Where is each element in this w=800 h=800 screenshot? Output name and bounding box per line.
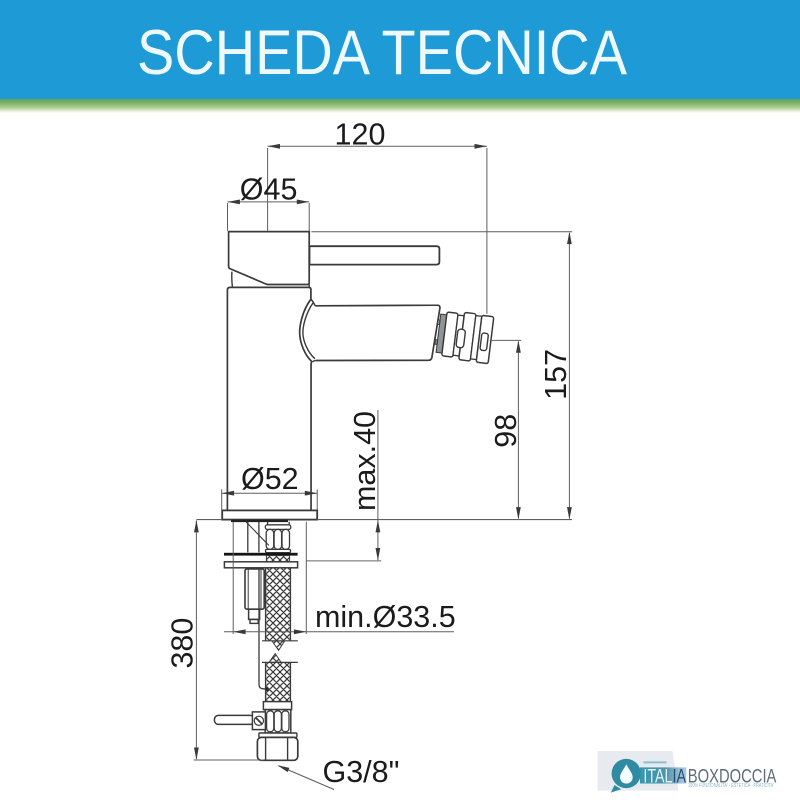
svg-text:ITALIA: ITALIA [643,766,686,787]
svg-text:SCHEDA TECNICA: SCHEDA TECNICA [137,18,628,88]
svg-text:G3/8": G3/8" [323,755,400,789]
svg-text:Ø45: Ø45 [240,173,298,207]
svg-text:120: 120 [335,118,386,152]
svg-text:Ø52: Ø52 [241,462,299,496]
svg-text:380: 380 [165,618,199,669]
svg-text:max.40: max.40 [348,411,382,511]
svg-text:157: 157 [539,349,573,400]
svg-text:98: 98 [489,414,523,448]
svg-text:min.Ø33.5: min.Ø33.5 [315,600,456,634]
svg-text:100% FUNZIONALITA' - ESTETICA: 100% FUNZIONALITA' - ESTETICA - PRATICIT… [688,783,774,789]
